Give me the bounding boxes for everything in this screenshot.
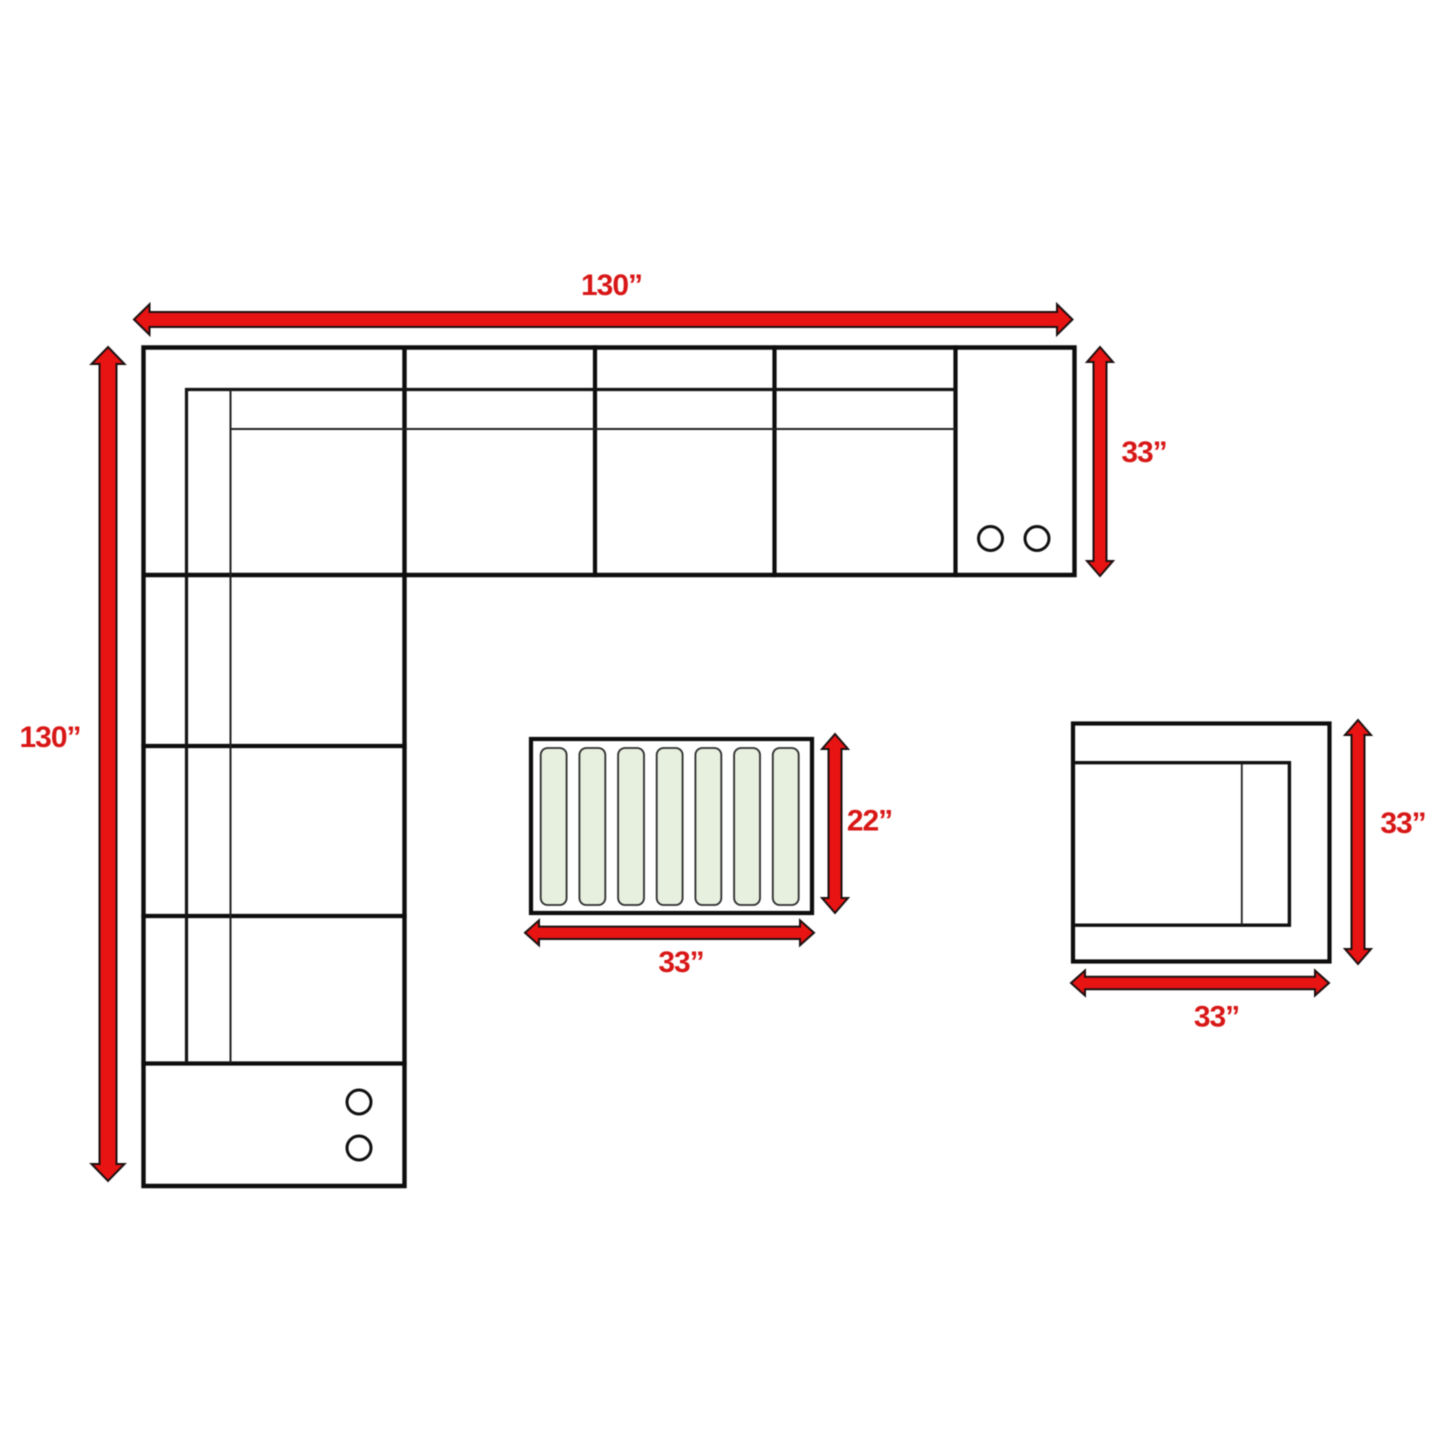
svg-text:22”: 22” [847,805,892,838]
svg-text:130”: 130” [581,269,642,302]
svg-text:33”: 33” [1194,1001,1239,1034]
svg-text:33”: 33” [658,946,703,979]
svg-text:130”: 130” [19,721,80,754]
svg-text:33”: 33” [1380,807,1425,840]
svg-text:33”: 33” [1121,436,1166,469]
